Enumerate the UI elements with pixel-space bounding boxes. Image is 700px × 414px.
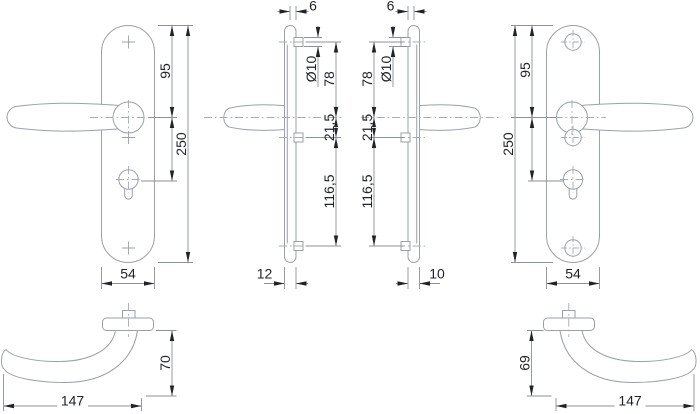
backplate-profile-outline: [285, 26, 297, 263]
technical-drawing-canvas: 95 250 54 6 Ø10 78 21,5 116,5 12: [0, 0, 700, 414]
dim-label-95: 95: [157, 63, 173, 79]
dim-label-116-5: 116,5: [321, 174, 337, 208]
drawing-svg: 95 250 54 6 Ø10 78 21,5 116,5 12: [0, 0, 700, 414]
lever-grip-curve: [1, 331, 137, 383]
extension-lines: [527, 331, 694, 412]
dimension-arrows: [274, 9, 338, 285]
right-backplate-front-view: [539, 26, 693, 263]
lever-handle: [7, 103, 121, 131]
dim-label-78: 78: [321, 71, 337, 87]
dim-label-10: 10: [429, 266, 445, 282]
dim-label-6: 6: [309, 0, 317, 14]
left-grip-dimensions: 70 147: [4, 331, 177, 412]
dimension-lines: [532, 331, 695, 407]
dim-label-21-5: 21,5: [359, 114, 375, 141]
left-lever-top-view: [1, 303, 153, 383]
dimension-arrows: [529, 331, 694, 409]
dim-label-dia10: Ø10: [378, 56, 394, 83]
dim-label-12: 12: [257, 266, 273, 282]
lever-handle: [579, 103, 693, 131]
dim-label-116-5: 116,5: [359, 174, 375, 208]
dim-label-70: 70: [157, 355, 173, 371]
dim-label-95: 95: [517, 62, 533, 78]
right-lever-top-view: [544, 303, 697, 383]
dim-label-147: 147: [618, 393, 642, 409]
backplate-profile-outline: [408, 26, 420, 263]
extension-lines: [4, 331, 177, 412]
dim-label-78: 78: [359, 71, 375, 87]
right-grip-dimensions: 69 147: [517, 331, 695, 412]
dim-label-69: 69: [517, 355, 533, 371]
dim-label-6: 6: [387, 0, 395, 14]
lever-grip-curve: [560, 331, 696, 383]
left-backplate-front-view: [7, 26, 163, 263]
dimension-arrows: [4, 331, 175, 409]
backplate-end-section: [103, 318, 154, 331]
dim-label-250: 250: [173, 132, 189, 156]
dim-label-dia10: Ø10: [303, 56, 319, 83]
dim-label-250: 250: [500, 132, 516, 156]
dim-label-147: 147: [61, 393, 85, 409]
left-backplate-profile-view: [204, 26, 342, 263]
dim-label-21-5: 21,5: [321, 114, 337, 141]
dim-label-54: 54: [120, 266, 136, 282]
dim-label-54: 54: [565, 266, 581, 282]
backplate-outline: [102, 26, 155, 263]
